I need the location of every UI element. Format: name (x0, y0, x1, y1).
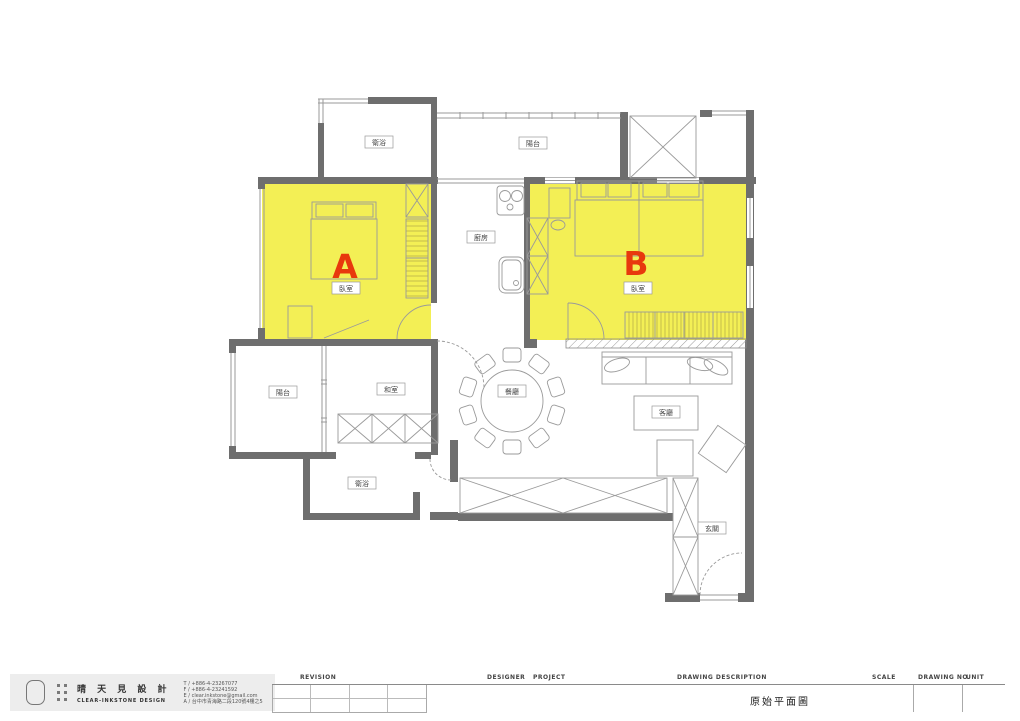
contact-address: A / 台中市青海路二段120號4樓之5 (184, 699, 263, 705)
svg-text:陽台: 陽台 (526, 139, 540, 148)
hatched-wall (566, 339, 746, 348)
room-label-tatami: 和室 (377, 383, 405, 395)
title-block-divider (962, 685, 963, 712)
drawing-title: 原始平面圖 (700, 693, 860, 708)
room-label-entry: 玄關 (698, 522, 726, 534)
svg-text:臥室: 臥室 (631, 284, 645, 293)
title-block-divider (913, 685, 914, 712)
room-letter-a[interactable]: A (332, 247, 358, 286)
header-revision: REVISION (300, 674, 336, 681)
svg-text:玄關: 玄關 (705, 524, 719, 533)
company-name-en: CLEAR-INKSTONE DESIGN (77, 698, 171, 704)
header-drawing-description: DRAWING DESCRIPTION (677, 674, 767, 681)
logo-dots-icon (57, 684, 67, 701)
svg-text:客廳: 客廳 (659, 408, 673, 417)
svg-text:衛浴: 衛浴 (372, 138, 386, 147)
room-label-bath-bottom: 衛浴 (348, 477, 376, 489)
svg-text:陽台: 陽台 (276, 388, 290, 397)
contact-email: E / clear.inkstone@gmail.com (184, 693, 263, 699)
header-unit: UNIT (966, 674, 984, 681)
room-letter-b[interactable]: B (623, 244, 648, 283)
room-label-dining: 餐廳 (498, 385, 526, 397)
header-scale: SCALE (872, 674, 896, 681)
svg-text:和室: 和室 (384, 385, 398, 394)
svg-text:餐廳: 餐廳 (505, 387, 519, 396)
company-contact: T / +886-4-23267077 F / +886-4-23241592 … (184, 681, 263, 705)
room-label-bedroom-b: 臥室 (624, 282, 652, 294)
room-label-balcony-top: 陽台 (519, 137, 547, 149)
room-label-kitchen: 廚房 (467, 231, 495, 243)
inkstone-logo-icon (26, 680, 45, 705)
room-label-living: 客廳 (652, 406, 680, 418)
header-drawing-no: DRAWING NO. (918, 674, 971, 681)
room-label-balcony-left: 陽台 (269, 386, 297, 398)
svg-text:廚房: 廚房 (474, 233, 488, 242)
svg-text:衛浴: 衛浴 (355, 479, 369, 488)
floor-plan: 衛浴 陽台 廚房 臥室 臥室 陽台 和室 餐廳 (0, 0, 1020, 660)
floor-plan-sheet: 衛浴 陽台 廚房 臥室 臥室 陽台 和室 餐廳 (0, 0, 1020, 721)
company-logo-panel: 晴 天 見 設 計 CLEAR-INKSTONE DESIGN T / +886… (10, 674, 275, 711)
room-label-bath-top: 衛浴 (365, 136, 393, 148)
header-project: PROJECT (533, 674, 565, 681)
revision-table (272, 685, 427, 713)
header-designer: DESIGNER (487, 674, 525, 681)
company-name-cn: 晴 天 見 設 計 (77, 682, 171, 695)
windows (231, 99, 746, 600)
